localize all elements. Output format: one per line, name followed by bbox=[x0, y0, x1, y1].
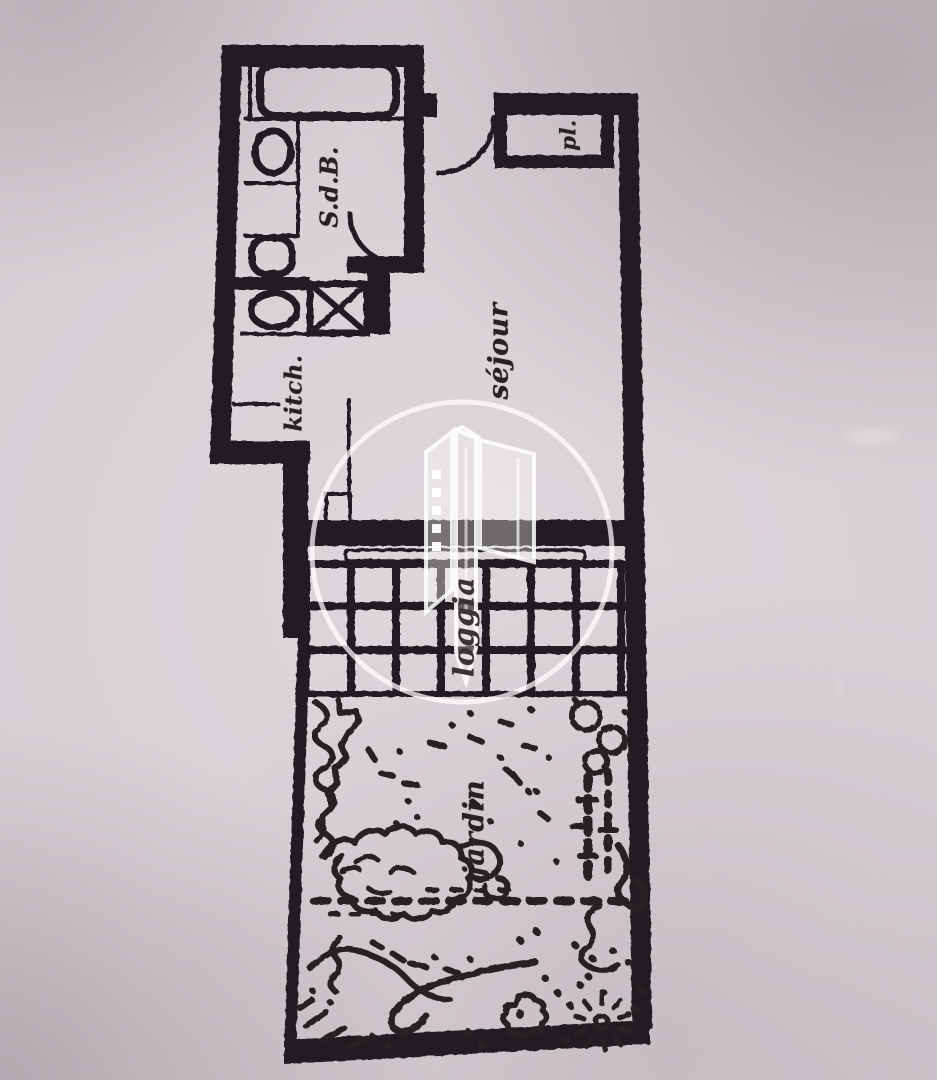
entry-door-arc bbox=[438, 117, 494, 173]
room-label-pl: pl. bbox=[556, 119, 581, 150]
paper-crease bbox=[836, 678, 841, 700]
toilet bbox=[252, 238, 292, 274]
bathtub bbox=[260, 64, 396, 116]
floor-plan-drawing bbox=[0, 0, 937, 1080]
photo-of-floor-plan: S.d.B. pl. kitch. séjour loggia jardin bbox=[0, 0, 937, 1080]
bathroom-door-arc bbox=[350, 214, 399, 263]
washbasin bbox=[255, 131, 291, 173]
room-label-loggia: loggia bbox=[448, 577, 481, 677]
room-label-jardin: jardin bbox=[458, 780, 491, 877]
room-label-sdb: S.d.B. bbox=[315, 146, 344, 228]
laundry-oval bbox=[251, 293, 297, 327]
room-label-sejour: séjour bbox=[484, 302, 515, 399]
room-label-kitch: kitch. bbox=[281, 354, 308, 431]
paper-sheen bbox=[846, 428, 898, 444]
